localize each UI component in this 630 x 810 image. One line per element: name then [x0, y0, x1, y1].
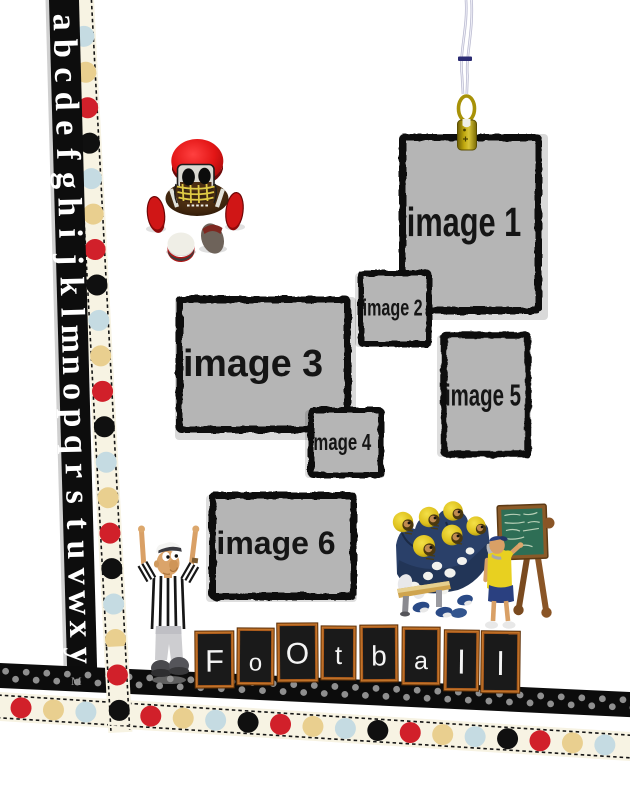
- svg-text:h: h: [50, 197, 88, 217]
- svg-text:b: b: [46, 38, 83, 58]
- svg-text:w: w: [61, 590, 99, 616]
- svg-text:g: g: [50, 171, 87, 189]
- svg-text:f: f: [49, 148, 86, 161]
- svg-text:y: y: [63, 646, 100, 664]
- svg-text:j: j: [52, 252, 89, 265]
- svg-text:e: e: [48, 120, 85, 136]
- svg-text:d: d: [47, 91, 85, 111]
- svg-text:image 3: image 3: [183, 343, 323, 385]
- svg-text:image 1: image 1: [407, 199, 521, 245]
- svg-text:v: v: [60, 567, 97, 585]
- svg-text:c: c: [47, 67, 84, 83]
- svg-text:a: a: [414, 647, 428, 675]
- svg-text:s: s: [58, 490, 95, 504]
- svg-text:O: O: [286, 637, 310, 670]
- svg-text:p: p: [56, 408, 93, 428]
- svg-text:x: x: [62, 620, 99, 638]
- svg-text:m: m: [54, 324, 92, 353]
- svg-text:M: M: [71, 674, 82, 688]
- svg-text:l: l: [53, 307, 90, 317]
- svg-text:o: o: [55, 383, 92, 401]
- svg-text:k: k: [52, 276, 90, 296]
- svg-text:image 2: image 2: [363, 296, 423, 321]
- svg-text:F: F: [205, 643, 224, 678]
- svg-text:t: t: [59, 517, 96, 530]
- svg-text:q: q: [57, 434, 95, 454]
- svg-text:i: i: [51, 228, 88, 238]
- svg-text:r: r: [58, 463, 95, 479]
- svg-text:a: a: [45, 13, 82, 31]
- svg-text:image 5: image 5: [445, 380, 521, 413]
- svg-text:image 4: image 4: [309, 430, 372, 455]
- svg-text:n: n: [55, 355, 93, 375]
- svg-text:u: u: [60, 540, 97, 560]
- svg-text:b: b: [371, 640, 387, 671]
- svg-text:o: o: [249, 649, 263, 676]
- svg-text:l: l: [497, 645, 505, 682]
- svg-text:t: t: [335, 640, 343, 670]
- svg-text:image 6: image 6: [216, 525, 335, 561]
- svg-text:l: l: [458, 643, 466, 680]
